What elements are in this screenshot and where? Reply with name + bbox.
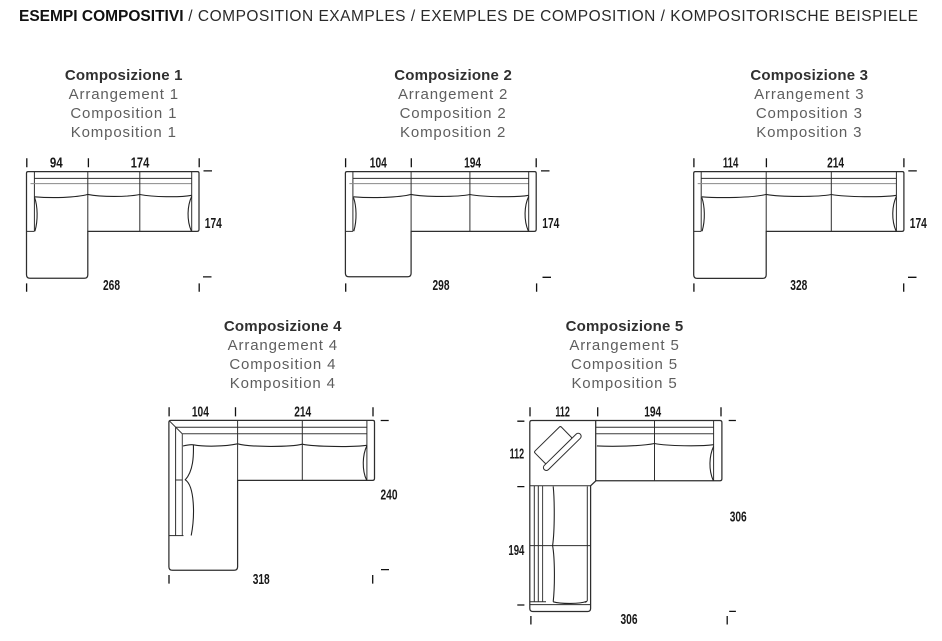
svg-text:298: 298 — [433, 277, 450, 294]
svg-text:194: 194 — [644, 404, 661, 421]
svg-text:306: 306 — [730, 508, 747, 525]
svg-text:174: 174 — [205, 215, 222, 232]
svg-text:94: 94 — [50, 154, 63, 171]
svg-text:318: 318 — [253, 571, 270, 588]
svg-text:174: 174 — [542, 215, 559, 232]
svg-text:174: 174 — [131, 154, 150, 171]
svg-text:104: 104 — [370, 154, 387, 171]
svg-text:328: 328 — [790, 277, 807, 294]
svg-text:240: 240 — [381, 486, 398, 503]
svg-text:112: 112 — [510, 445, 525, 462]
svg-text:194: 194 — [508, 542, 524, 559]
svg-text:268: 268 — [103, 277, 120, 294]
svg-text:306: 306 — [621, 611, 638, 628]
svg-text:174: 174 — [910, 215, 927, 232]
svg-text:112: 112 — [555, 404, 570, 421]
svg-text:114: 114 — [723, 154, 739, 171]
svg-text:214: 214 — [827, 154, 844, 171]
svg-text:214: 214 — [294, 404, 311, 421]
svg-text:104: 104 — [192, 404, 209, 421]
svg-text:194: 194 — [464, 154, 481, 171]
